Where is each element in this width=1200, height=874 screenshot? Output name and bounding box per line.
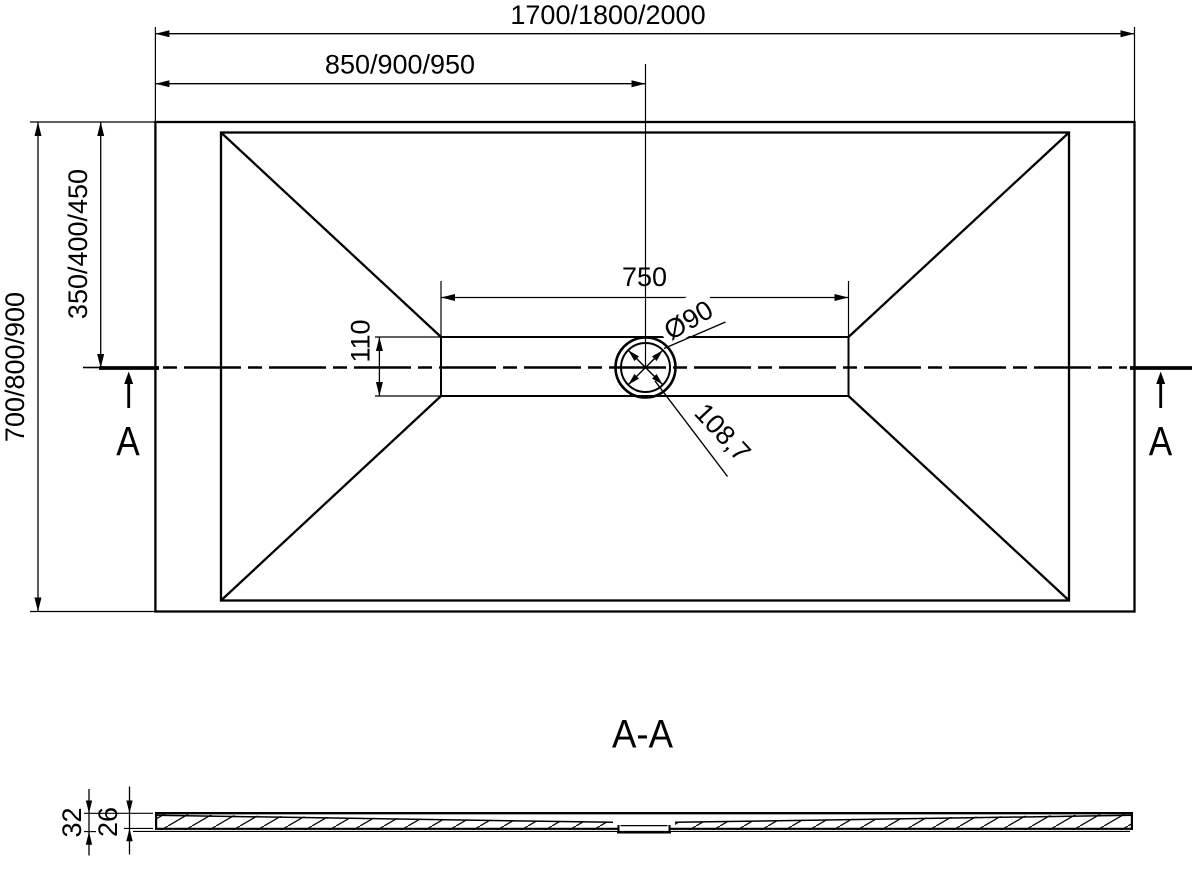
svg-text:A-A: A-A: [612, 713, 673, 757]
svg-text:32: 32: [57, 807, 87, 837]
svg-text:110: 110: [346, 319, 376, 362]
svg-text:850/900/950: 850/900/950: [325, 50, 475, 80]
svg-text:A: A: [1149, 418, 1173, 464]
svg-text:750: 750: [622, 262, 667, 292]
svg-text:700/800/900: 700/800/900: [0, 292, 30, 442]
svg-text:350/400/450: 350/400/450: [63, 169, 93, 319]
svg-text:1700/1800/2000: 1700/1800/2000: [510, 0, 705, 30]
svg-text:A: A: [116, 418, 140, 464]
svg-text:26: 26: [93, 807, 123, 837]
